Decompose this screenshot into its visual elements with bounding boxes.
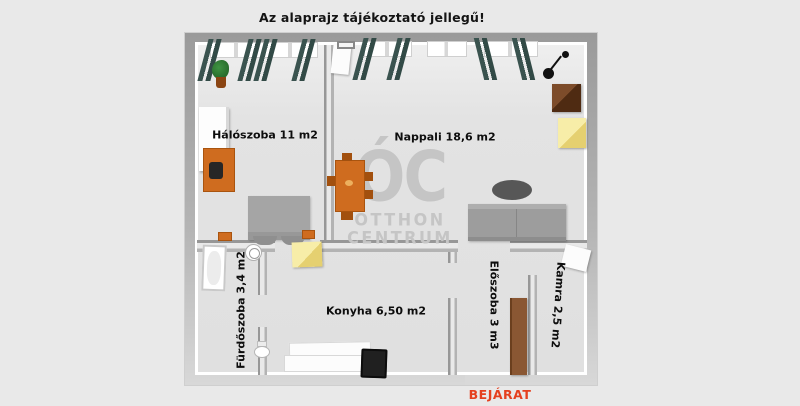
rug-icon [492,180,532,200]
dining-chair-icon [365,190,373,199]
plant-pot-icon [216,77,226,88]
floor-plan: ÓC OTTHON CENTRUM [185,33,597,385]
toilet-bowl [254,346,270,358]
dining-chair-icon [327,176,335,186]
picture-frame-icon [337,41,355,49]
bathtub-basin [206,251,221,285]
wall-hall-pantry [528,275,537,375]
washing-machine-icon [245,244,262,261]
hall-wardrobe-icon [510,298,527,375]
room-label-kitchen: Konyha 6,50 m2 [326,305,426,318]
room-label-bedroom: Hálószoba 11 m2 [212,129,318,142]
disclaimer-text: Az alaprajz tájékoztató jellegű! [0,10,744,25]
kitchen-counter-icon [284,355,362,372]
window-icon [428,42,466,56]
nightstand-icon [218,232,232,241]
kitchen-cabinet-icon [292,241,323,267]
watermark-line1: OTTHON [347,211,453,228]
brown-cabinet-icon [552,84,581,112]
dining-table-icon [335,160,365,212]
yellow-shelf-icon [558,118,586,148]
entrance-label: BEJÁRAT [445,387,555,402]
window-icon [485,42,537,56]
sofa-seam [516,209,517,237]
sofa-icon [468,204,566,241]
coat-stand-icon [543,51,569,79]
room-label-living-room: Nappali 18,6 m2 [394,131,495,144]
desk-chair-icon [209,162,223,179]
dining-chair-icon [365,172,373,181]
coat-stand-base [543,68,554,79]
dining-chair-icon [341,212,353,220]
stove-icon [361,349,388,379]
room-label-hallway: Előszoba 3 m3 [488,260,501,349]
bathtub-icon [201,245,227,292]
wall-bedroom-living [324,45,334,252]
nightstand-icon [302,230,315,239]
bed-icon [248,196,310,240]
entrance-opening [465,375,520,385]
coat-stand-top [562,51,569,58]
room-label-bathroom: Fürdőszoba 3,4 m2 [235,251,248,369]
wall-kitchen-hall-upper [448,252,457,263]
dining-chair-icon [342,153,352,161]
watermark-line2: CENTRUM [347,229,453,246]
washing-machine-drum [249,248,260,259]
toilet-icon [254,341,270,359]
wall-kitchen-hall-lower [448,298,457,375]
table-detail-icon [345,180,353,186]
